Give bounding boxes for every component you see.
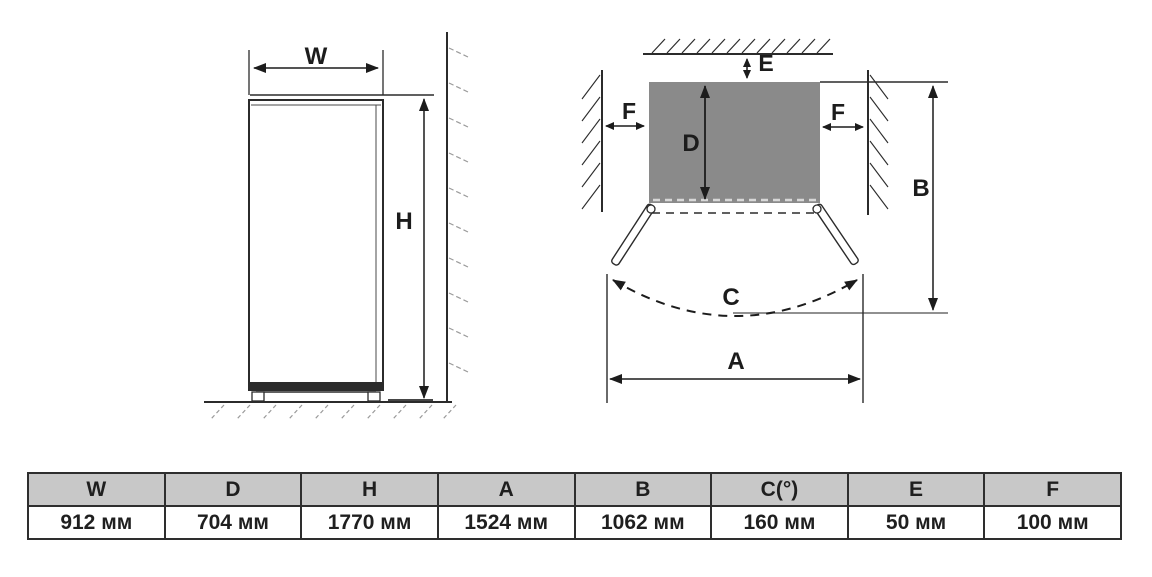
floor-hatching	[211, 405, 456, 419]
fridge-top-view-body	[649, 82, 820, 203]
fridge-front-outline	[249, 100, 383, 390]
open-width-label: A	[727, 348, 744, 375]
table-value-cell-d: 704 мм	[165, 506, 302, 539]
left-door-open	[611, 203, 656, 266]
height-label: H	[395, 208, 412, 235]
table-header-cell-h: H	[301, 473, 438, 506]
right-clearance-label: F	[831, 99, 845, 125]
back-wall-hatching	[652, 39, 830, 53]
dimensions-diagram: W	[0, 0, 1152, 460]
fridge-plinth	[250, 382, 382, 389]
table-header-cell-d: D	[165, 473, 302, 506]
open-depth-label: B	[912, 175, 929, 202]
table-value-cell-a: 1524 мм	[438, 506, 575, 539]
front-view-diagram: W	[204, 32, 468, 419]
left-clearance-label: F	[622, 98, 636, 124]
table-header-row: W D H A B C(°) E F	[28, 473, 1121, 506]
table-header-cell-f: F	[984, 473, 1121, 506]
table-value-cell-e: 50 мм	[848, 506, 985, 539]
table-value-row: 912 мм 704 мм 1770 мм 1524 мм 1062 мм 16…	[28, 506, 1121, 539]
depth-label: D	[682, 130, 699, 157]
table-value-cell-f: 100 мм	[984, 506, 1121, 539]
right-door-open	[813, 203, 859, 266]
appliance-dimensions-page: W	[0, 0, 1152, 577]
back-clearance-label: E	[758, 50, 773, 76]
table-header-cell-a: A	[438, 473, 575, 506]
dimensions-table: W D H A B C(°) E F 912 мм 704 мм 1770 мм…	[27, 472, 1122, 540]
table-value-cell-c: 160 мм	[711, 506, 848, 539]
right-door-hinge	[813, 205, 821, 213]
top-view-left-wall-hatching	[582, 75, 600, 209]
fridge-foot-left	[252, 392, 264, 401]
width-label: W	[305, 43, 328, 70]
table-header-cell-c: C(°)	[711, 473, 848, 506]
table-header-cell-e: E	[848, 473, 985, 506]
table-header-cell-b: B	[575, 473, 712, 506]
top-view-right-wall-hatching	[870, 75, 888, 209]
top-view-diagram: E D F	[582, 39, 948, 403]
fridge-foot-right	[368, 392, 380, 401]
table-value-cell-w: 912 мм	[28, 506, 165, 539]
table-value-cell-h: 1770 мм	[301, 506, 438, 539]
left-door-hinge	[647, 205, 655, 213]
front-view-wall-hatching	[449, 48, 468, 372]
table-header-cell-w: W	[28, 473, 165, 506]
table-value-cell-b: 1062 мм	[575, 506, 712, 539]
door-swing-label: C	[722, 284, 739, 311]
